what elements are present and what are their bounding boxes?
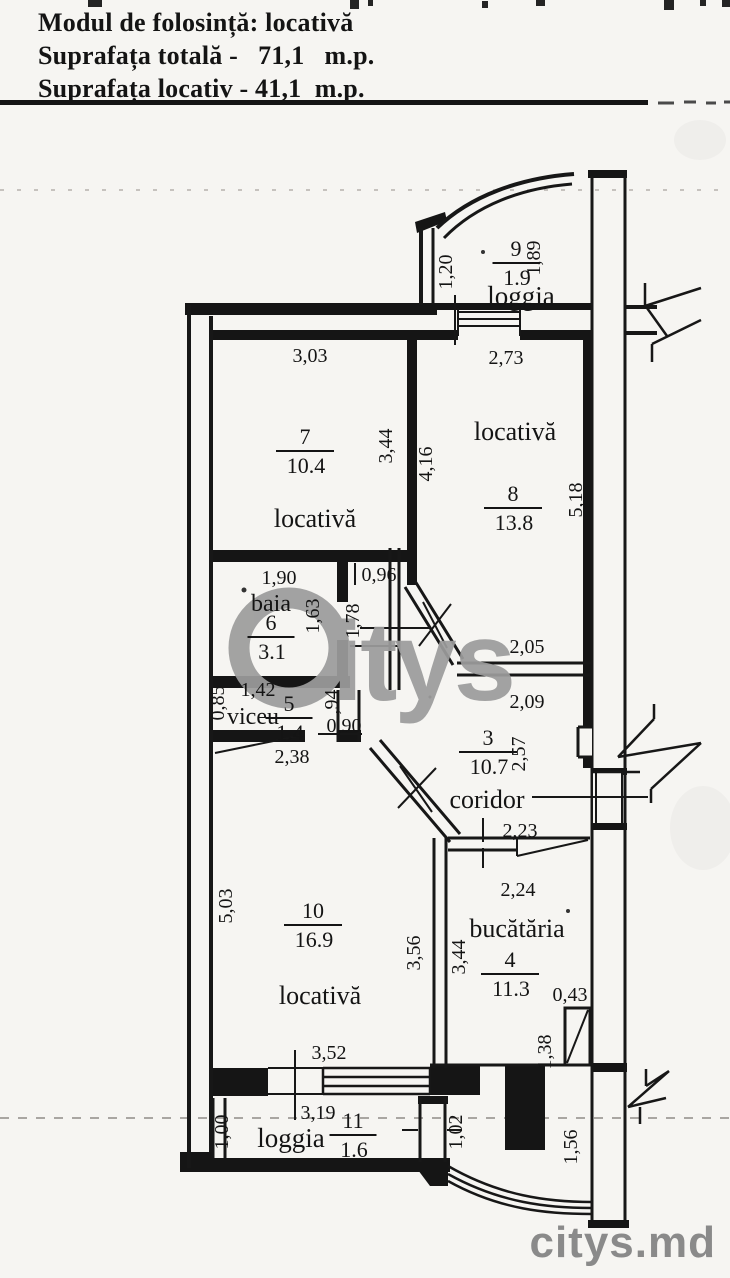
dimension-120-2: 1,20 [435, 255, 457, 290]
room-4-area: 11.3 [492, 976, 530, 1001]
loggia9-arc-inner [444, 184, 572, 238]
dimension-100-28: 1,00 [211, 1115, 233, 1150]
room-5-number: 5 [284, 691, 295, 716]
room-9-number: 9 [511, 236, 522, 261]
dimension-090-17: 0,90 [327, 715, 362, 737]
room-11-area: 1.6 [340, 1137, 368, 1162]
room-11-name: loggia [257, 1123, 325, 1153]
dimension-190-7: 1,90 [262, 567, 297, 589]
room-7-number: 7 [300, 424, 311, 449]
dimension-303-0: 3,03 [293, 345, 328, 367]
dimension-224-20: 2,24 [501, 879, 536, 901]
vent-shaft [565, 1008, 590, 1065]
dimension-156-30: 1,56 [560, 1130, 582, 1165]
room-3-name: coridor [449, 785, 524, 814]
loggia9-arc-outer [437, 174, 574, 228]
entry-door-recess [578, 727, 592, 757]
dimension-043-24: 0,43 [553, 984, 588, 1006]
room-8-number: 8 [508, 481, 519, 506]
room-9-name: loggia [487, 281, 555, 311]
dimension-344-4: 3,44 [375, 429, 397, 464]
wall-break-symbols [592, 283, 701, 1124]
dimension-94-16: ,94 [321, 690, 343, 715]
dimension-503-21: 5,03 [215, 889, 237, 924]
dimension-102-29: 1,02 [445, 1115, 467, 1150]
room-7-area: 10.4 [287, 453, 326, 478]
room-11-number: 11 [342, 1108, 363, 1133]
dimension-238-18: 2,38 [275, 746, 310, 768]
dimension-205-11: 2,05 [510, 636, 545, 658]
room-5-name: viceu [227, 704, 279, 730]
room-7-name: locativă [274, 504, 357, 533]
dimension-209-12: 2,09 [510, 691, 545, 713]
room-3-number: 3 [483, 725, 494, 750]
dimension-142-15: 1,42 [241, 679, 276, 701]
dimension-352-26: 3,52 [312, 1042, 347, 1064]
dimension-319-27: 3,19 [301, 1102, 336, 1124]
scanned-floor-plan-page: Modul de folosință: locativă Suprafața t… [0, 0, 730, 1278]
dimension-189-3: 1,89 [523, 241, 545, 276]
room-4-number: 4 [505, 947, 516, 972]
room-10-area: 16.9 [295, 927, 334, 952]
dimension-163-9: 1,63 [302, 599, 324, 634]
room-10-name: locativă [279, 981, 362, 1010]
dimension-096-8: 0,96 [362, 564, 397, 586]
room-6-name: baia [251, 591, 291, 617]
lower-loggia-arcs [448, 1166, 592, 1214]
dimension-223-19: 2,23 [503, 820, 538, 842]
room-8-area: 13.8 [495, 510, 534, 535]
dimension-273-1: 2,73 [489, 347, 524, 369]
room-3-area: 10.7 [470, 754, 509, 779]
dimension-518-6: 5,18 [565, 483, 587, 518]
room-5-area: 1.4 [276, 720, 304, 745]
dimension-416-5: 4,16 [415, 447, 437, 482]
room-4-name: bucătăria [469, 914, 565, 943]
room-6-area: 3.1 [258, 639, 286, 664]
dimension-138-25: 1,38 [534, 1035, 556, 1070]
room-8-name: locativă [474, 417, 557, 446]
dimension-344-23: 3,44 [448, 940, 470, 975]
dimension-178-10: 1,78 [342, 604, 364, 639]
scan-cutoff-text-fragments [88, 0, 730, 10]
dimension-085-14: 0,85 [207, 686, 229, 721]
citys-md-logo: citys.md [529, 1218, 716, 1267]
room-10-number: 10 [302, 898, 324, 923]
scan-smudges [670, 120, 730, 870]
dimension-257-13: 2,57 [508, 737, 530, 772]
dimension-356-22: 3,56 [403, 936, 425, 971]
floor-plan: itys 91.9loggia710.4locativă813.8locativ… [0, 0, 730, 1278]
